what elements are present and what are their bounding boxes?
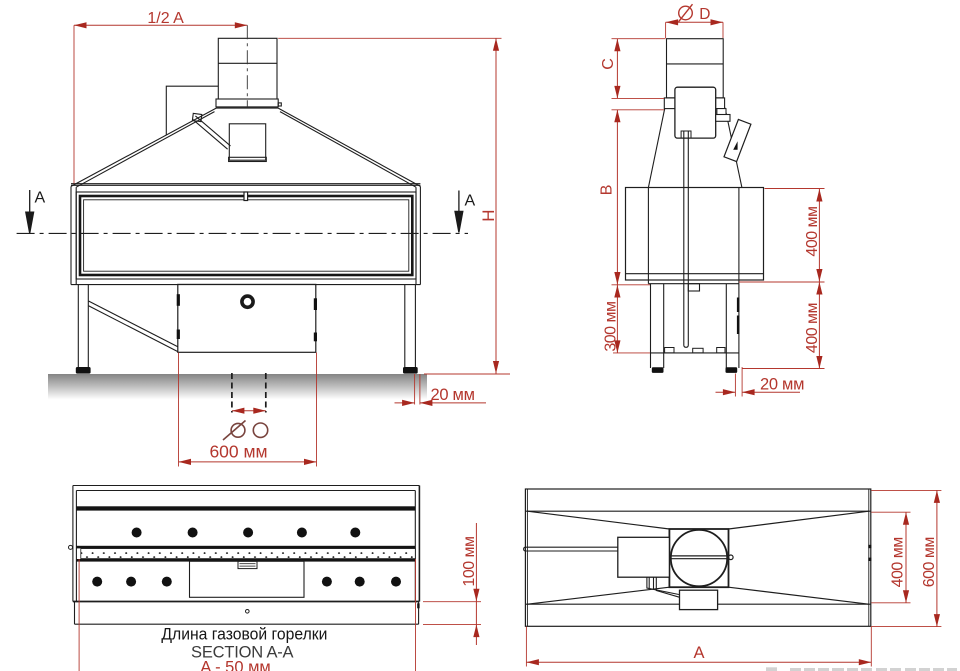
svg-text:600 мм: 600 мм (209, 442, 267, 462)
svg-text:D: D (699, 6, 710, 23)
svg-text:A: A (35, 190, 46, 207)
svg-text:B: B (599, 185, 616, 196)
svg-text:400 мм: 400 мм (890, 537, 907, 587)
svg-text:20 мм: 20 мм (760, 376, 804, 394)
svg-text:600 мм: 600 мм (921, 537, 938, 587)
svg-text:1/2 A: 1/2 A (147, 10, 184, 27)
svg-text:300 мм: 300 мм (602, 302, 619, 352)
svg-text:C: C (600, 58, 617, 70)
svg-text:400 мм: 400 мм (804, 303, 821, 353)
svg-text:20 мм: 20 мм (431, 386, 475, 404)
svg-text:400 мм: 400 мм (804, 206, 821, 256)
svg-text:A: A (693, 644, 704, 662)
svg-text:A: A (465, 193, 476, 210)
svg-text:Длина газовой горелки: Длина газовой горелки (161, 626, 327, 644)
svg-text:H: H (479, 209, 498, 221)
svg-text:A - 50 мм: A - 50 мм (200, 659, 270, 671)
svg-text:100 мм: 100 мм (461, 536, 478, 586)
